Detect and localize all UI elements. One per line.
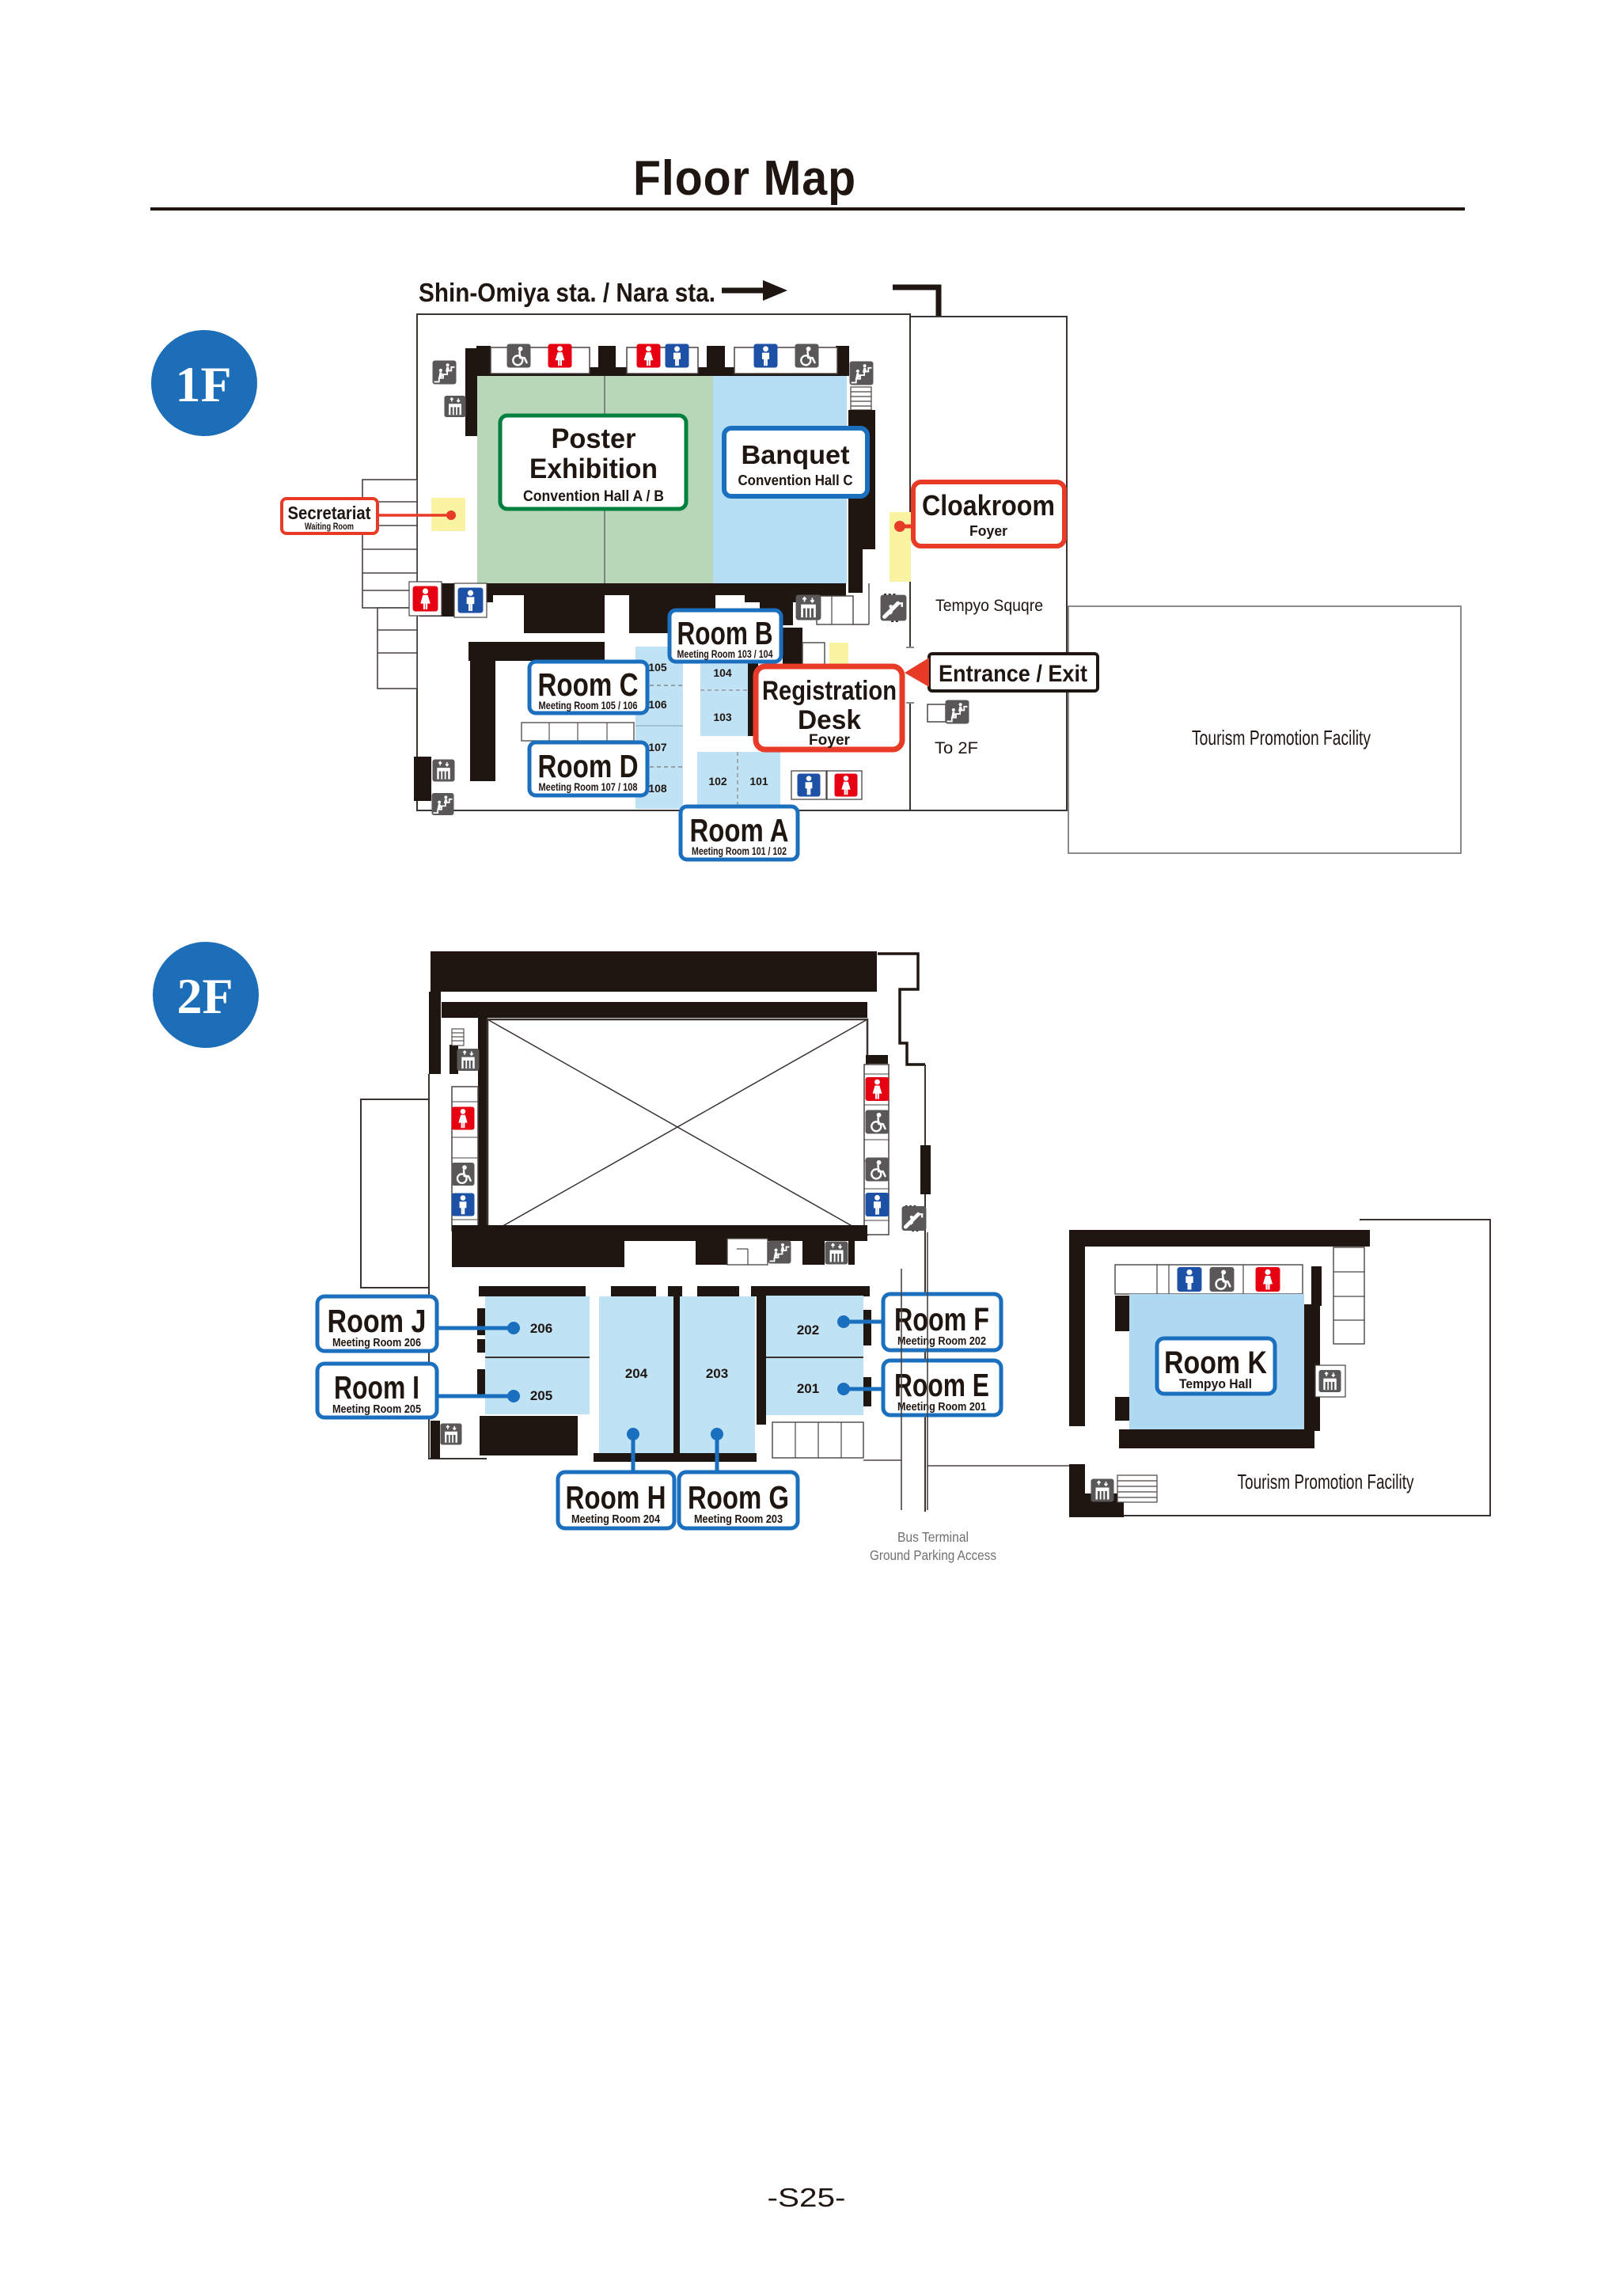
svg-text:Meeting Room 205: Meeting Room 205 xyxy=(332,1402,421,1416)
svg-text:Exhibition: Exhibition xyxy=(529,454,658,484)
svg-text:Meeting Room 202: Meeting Room 202 xyxy=(897,1334,986,1348)
svg-text:Tempyo Hall: Tempyo Hall xyxy=(1179,1376,1252,1391)
svg-text:106: 106 xyxy=(648,698,667,711)
svg-text:104: 104 xyxy=(713,666,732,679)
svg-text:-S25-: -S25- xyxy=(768,2183,846,2212)
svg-text:Ground Parking Access: Ground Parking Access xyxy=(870,1547,996,1563)
svg-text:Meeting Room 101 / 102: Meeting Room 101 / 102 xyxy=(692,844,787,857)
svg-text:Room A: Room A xyxy=(690,812,789,848)
svg-text:Room B: Room B xyxy=(677,615,773,651)
svg-text:101: 101 xyxy=(749,775,768,787)
svg-text:Registration: Registration xyxy=(762,676,897,706)
svg-text:Tourism Promotion Facility: Tourism Promotion Facility xyxy=(1238,1470,1414,1493)
svg-text:Room E: Room E xyxy=(894,1367,989,1403)
svg-text:Meeting Room 201: Meeting Room 201 xyxy=(897,1400,986,1414)
svg-text:Meeting Room 206: Meeting Room 206 xyxy=(332,1336,421,1349)
svg-text:Tempyo Squqre: Tempyo Squqre xyxy=(935,597,1043,615)
svg-text:To 2F: To 2F xyxy=(935,739,978,757)
svg-text:206: 206 xyxy=(530,1321,552,1336)
svg-text:Room D: Room D xyxy=(538,748,639,784)
svg-text:204: 204 xyxy=(625,1366,648,1381)
svg-text:Poster: Poster xyxy=(552,423,636,454)
svg-text:Meeting Room 107 / 108: Meeting Room 107 / 108 xyxy=(539,780,638,793)
svg-text:202: 202 xyxy=(797,1323,819,1338)
svg-text:Meeting Room 204: Meeting Room 204 xyxy=(571,1512,661,1526)
svg-text:102: 102 xyxy=(708,775,727,787)
svg-text:Floor Map: Floor Map xyxy=(633,151,856,206)
svg-text:Room H: Room H xyxy=(566,1479,666,1516)
svg-text:Shin-Omiya sta. / Nara sta.: Shin-Omiya sta. / Nara sta. xyxy=(419,278,715,307)
svg-text:103: 103 xyxy=(713,711,732,723)
svg-text:Room I: Room I xyxy=(334,1369,419,1406)
svg-text:2F: 2F xyxy=(176,968,233,1024)
svg-text:Meeting Room 203: Meeting Room 203 xyxy=(694,1512,783,1526)
svg-text:Desk: Desk xyxy=(798,705,861,735)
svg-text:Foyer: Foyer xyxy=(969,523,1007,539)
svg-text:Room K: Room K xyxy=(1164,1345,1267,1380)
svg-text:201: 201 xyxy=(797,1381,819,1396)
svg-text:Meeting Room 103 / 104: Meeting Room 103 / 104 xyxy=(677,647,773,660)
svg-text:1F: 1F xyxy=(175,356,231,412)
svg-text:Room G: Room G xyxy=(688,1479,789,1516)
svg-text:Cloakroom: Cloakroom xyxy=(922,489,1055,522)
svg-text:107: 107 xyxy=(648,741,667,753)
svg-text:Meeting Room 105 / 106: Meeting Room 105 / 106 xyxy=(539,699,638,712)
svg-text:Convention Hall C: Convention Hall C xyxy=(738,472,853,488)
svg-text:Room J: Room J xyxy=(328,1303,427,1339)
svg-text:108: 108 xyxy=(648,782,667,795)
svg-text:Bus Terminal: Bus Terminal xyxy=(897,1529,969,1545)
svg-text:Tourism Promotion Facility: Tourism Promotion Facility xyxy=(1192,726,1371,750)
svg-text:105: 105 xyxy=(648,661,667,674)
svg-text:Banquet: Banquet xyxy=(742,440,850,469)
svg-text:Room C: Room C xyxy=(538,666,639,703)
svg-text:Convention Hall A / B: Convention Hall A / B xyxy=(523,488,664,505)
svg-text:Room F: Room F xyxy=(894,1301,989,1338)
svg-text:Entrance / Exit: Entrance / Exit xyxy=(939,661,1087,687)
svg-text:205: 205 xyxy=(530,1388,552,1403)
svg-text:Waiting Room: Waiting Room xyxy=(305,521,354,532)
svg-text:Foyer: Foyer xyxy=(809,732,851,749)
svg-text:203: 203 xyxy=(706,1366,728,1381)
